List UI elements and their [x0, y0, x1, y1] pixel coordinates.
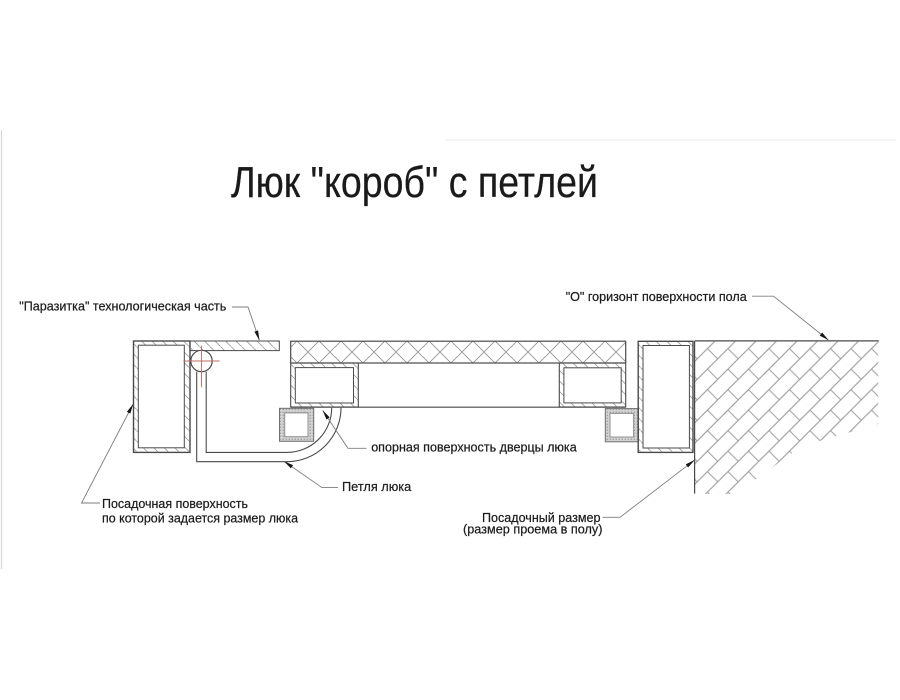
svg-text:"Паразитка" технологическая ча: "Паразитка" технологическая часть: [19, 299, 226, 314]
svg-text:(размер проема в полу): (размер проема в полу): [463, 522, 603, 537]
svg-text:опорная поверхность дверцы люк: опорная поверхность дверцы люка: [371, 440, 577, 455]
svg-text:Посадочная поверхность: Посадочная поверхность: [102, 496, 248, 511]
svg-text:"О" горизонт поверхности пола: "О" горизонт поверхности пола: [566, 289, 748, 304]
svg-text:по которой задается размер люк: по которой задается размер люка: [102, 511, 299, 526]
svg-text:Люк "короб" с петлей: Люк "короб" с петлей: [231, 159, 598, 207]
svg-text:Петля люка: Петля люка: [342, 479, 412, 494]
